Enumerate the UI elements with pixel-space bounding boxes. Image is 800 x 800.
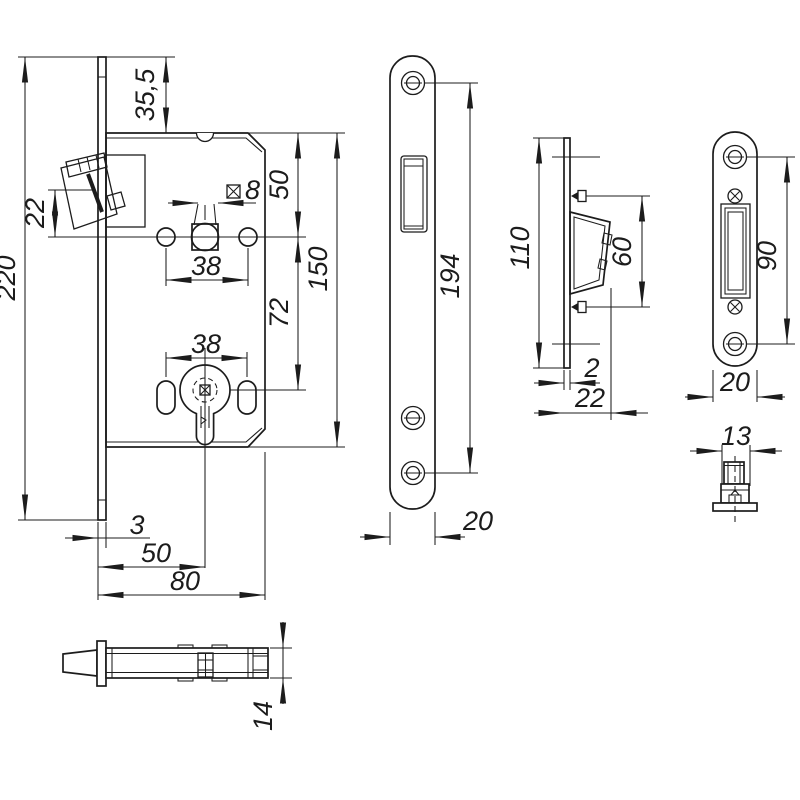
dim-body-height: 150 [303,246,333,291]
technical-drawing: 220 35,5 22 8 38 [0,0,800,800]
dim-body-thickness: 14 [248,701,278,731]
dim-body-depth: 80 [170,566,200,596]
dim-faceplate-thickness: 3 [129,510,144,540]
view-latch-bolt-top: 13 [690,421,782,524]
strike-screw-top [571,191,650,202]
dim-latch-width: 13 [721,421,751,451]
dim-strike-plate-width: 20 [719,367,750,397]
dim-faceplate-hole-spacing: 194 [435,253,465,298]
dim-spindle-to-cylinder: 72 [264,298,294,328]
dim-strike-screw-spacing: 60 [607,237,637,267]
view-lock-body-bottom: 14 [63,622,292,731]
strike-dust-box [570,212,612,294]
dim-handle-hole-spacing: 38 [191,251,221,281]
dim-strike-plate-thickness: 2 [583,353,599,383]
dim-cylinder-hole-spacing: 38 [191,329,221,359]
view-lock-body-front: 220 35,5 22 8 38 [0,57,345,600]
latch-tip-bottom [63,650,97,676]
dim-faceplate-width: 20 [462,506,493,536]
dim-faceplate-overhang: 35,5 [130,68,160,122]
view-faceplate-front: 194 20 [360,56,493,545]
dim-strike-plate-height: 110 [505,226,535,269]
dim-edge-to-spindle: 50 [264,170,294,200]
dim-strike-hole-spacing: 90 [752,241,782,271]
dim-strike-overall-depth: 22 [574,383,605,413]
dim-backset: 50 [141,538,171,568]
lock-body-bottom-outline [106,648,268,678]
faceplate-flange-bottom [97,641,106,686]
dim-latch-height: 22 [20,198,50,229]
faceplate-edge [98,57,106,520]
strike-plate-side-outline [564,138,570,368]
lock-body-outline [106,133,265,447]
view-strike-plate-front: 90 20 [685,132,795,402]
dim-overall-height: 220 [0,255,21,301]
faceplate-outline [390,56,435,509]
dim-spindle-square: 8 [245,175,260,205]
view-strike-plate-side: 110 60 2 22 [505,138,650,420]
